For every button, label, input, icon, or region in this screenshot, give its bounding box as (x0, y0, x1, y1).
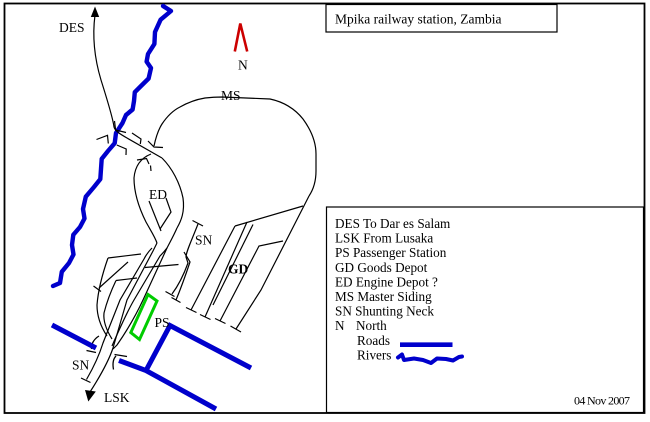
svg-text:DES To Dar es Salam: DES To Dar es Salam (335, 216, 451, 231)
svg-text:PS Passenger Station: PS Passenger Station (335, 245, 447, 260)
svg-text:LSK: LSK (104, 390, 130, 405)
svg-text:MS Master Siding: MS Master Siding (335, 289, 432, 304)
svg-text:North: North (356, 318, 387, 333)
svg-text:N: N (335, 318, 345, 333)
svg-text:SN Shunting Neck: SN Shunting Neck (335, 304, 434, 319)
svg-text:04 Nov 2007: 04 Nov 2007 (574, 394, 630, 408)
svg-text:ED: ED (149, 187, 167, 202)
svg-text:SN: SN (195, 233, 213, 248)
svg-text:GD: GD (228, 262, 249, 277)
svg-text:GD Goods Depot: GD Goods Depot (335, 260, 428, 275)
svg-text:Mpika railway station, Zambia: Mpika railway station, Zambia (335, 12, 501, 27)
svg-text:SN: SN (72, 358, 90, 373)
svg-text:DES: DES (59, 20, 85, 35)
svg-text:ED Engine Depot ?: ED Engine Depot ? (335, 274, 438, 289)
svg-text:N: N (238, 58, 248, 73)
svg-text:MS: MS (221, 88, 241, 103)
svg-text:Rivers: Rivers (357, 347, 391, 362)
svg-text:Roads: Roads (357, 333, 390, 348)
svg-text:LSK From Lusaka: LSK From Lusaka (335, 231, 433, 246)
svg-text:PS: PS (155, 315, 170, 330)
